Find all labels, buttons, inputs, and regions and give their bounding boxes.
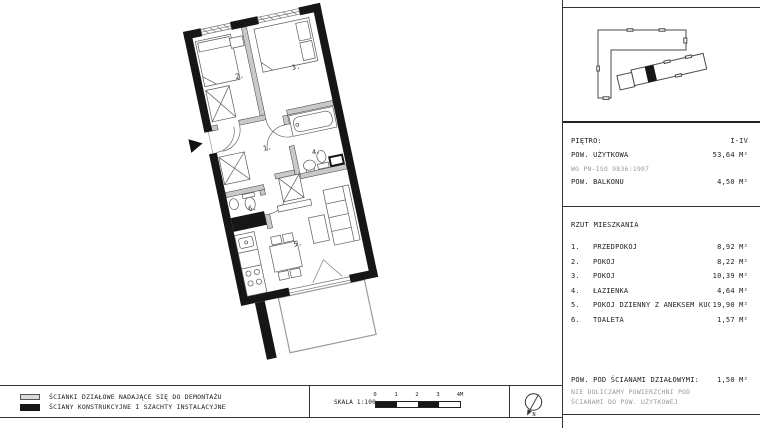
room-name: POKÓJ DZIENNY Z ANEKSEM KUCHENNYM <box>593 301 710 310</box>
legend-partition-label: ŚCIANKI DZIAŁOWE NADAJĄCE SIĘ DO DEMONTA… <box>49 393 222 401</box>
room-area: 19,90 M² <box>710 301 748 310</box>
usable-area-row: POW. UŻYTKOWA 53,64 M² <box>571 151 748 160</box>
legend-row-structural: ŚCIANY KONSTRUKCYJNE I SZACHTY INSTALACY… <box>20 403 309 411</box>
site-plan <box>563 8 760 121</box>
scale-bar <box>375 401 461 408</box>
legend-row-partition: ŚCIANKI DZIAŁOWE NADAJĄCE SIĘ DO DEMONTA… <box>20 393 309 401</box>
partition-area-value: 1,50 M² <box>717 376 748 385</box>
room-name: POKÓJ <box>593 272 710 281</box>
partition-note-line2: ŚCIANAMI DO POW. UŻYTKOWEJ <box>571 398 748 407</box>
room-number: 3. <box>571 272 593 281</box>
scale-tick-4: 4M <box>457 392 464 398</box>
balcony-area-value: 4,50 M² <box>717 178 748 187</box>
scale-section: SKALA 1:100 0 1 2 3 4M <box>310 386 510 417</box>
room-name: POKÓJ <box>593 258 714 267</box>
room-name: ŁAZIENKA <box>593 287 714 296</box>
legend: ŚCIANKI DZIAŁOWE NADAJĄCE SIĘ DO DEMONTA… <box>0 386 310 417</box>
room-area: 10,39 M² <box>710 272 748 281</box>
scale-tick-3: 3 <box>436 392 439 398</box>
room-row-2: 2. POKÓJ 8,22 M² <box>571 258 748 267</box>
title-block-strip: ŚCIANKI DZIAŁOWE NADAJĄCE SIĘ DO DEMONTA… <box>0 385 562 418</box>
room-row-3: 3. POKÓJ 10,39 M² <box>571 272 748 281</box>
compass-section: N <box>510 386 562 417</box>
balcony-area-row: POW. BALKONU 4,50 M² <box>571 178 748 187</box>
scale-tick-0: 0 <box>373 392 376 398</box>
info-panel: PIĘTRO: I-IV POW. UŻYTKOWA 53,64 M² WG P… <box>562 0 760 428</box>
balcony-area-label: POW. BALKONU <box>571 178 624 187</box>
room-list-section: RZUT MIESZKANIA 1. PRZEDPOKÓJ 8,92 M² 2.… <box>563 208 760 415</box>
structural-wall-swatch <box>20 404 40 411</box>
site-building-bar <box>616 52 707 90</box>
room-row-4: 4. ŁAZIENKA 4,64 M² <box>571 287 748 296</box>
room-number: 1. <box>571 243 593 252</box>
room-row-6: 6. TOALETA 1,57 M² <box>571 316 748 325</box>
floor-label: PIĘTRO: <box>571 137 602 146</box>
room-number: 2. <box>571 258 593 267</box>
floor-value: I-IV <box>730 137 748 146</box>
room-name: TOALETA <box>593 316 714 325</box>
installation-shaft <box>329 155 344 167</box>
room-number: 5. <box>571 301 593 310</box>
room-number: 6. <box>571 316 593 325</box>
floor-plan-sheet: 1. 2. 3. 4. 5. 6. ŚCIANKI DZIAŁOWE NADAJ… <box>0 0 760 428</box>
room-number: 4. <box>571 287 593 296</box>
partition-area-block: POW. POD ŚCIANAMI DZIAŁOWYMI: 1,50 M² NI… <box>571 376 748 408</box>
site-plan-section <box>563 7 760 123</box>
partition-wall-swatch <box>20 394 40 400</box>
legend-structural-label: ŚCIANY KONSTRUKCYJNE I SZACHTY INSTALACY… <box>49 403 226 411</box>
area-standard-note: WG PN-ISO 9836:1997 <box>571 165 748 173</box>
room-area: 8,22 M² <box>714 258 748 267</box>
plan-area: 1. 2. 3. 4. 5. 6. <box>0 0 562 385</box>
scale-tick-2: 2 <box>415 392 418 398</box>
room-area: 1,57 M² <box>714 316 748 325</box>
compass-north-label: N <box>532 412 535 417</box>
scale-tick-1: 1 <box>394 392 397 398</box>
room-area: 4,64 M² <box>714 287 748 296</box>
entrance-arrow-icon <box>188 137 204 153</box>
usable-area-value: 53,64 M² <box>713 151 748 160</box>
partition-area-row: POW. POD ŚCIANAMI DZIAŁOWYMI: 1,50 M² <box>571 376 748 385</box>
partition-note-line1: NIE DOLICZAMY POWIERZCHNI POD <box>571 388 748 397</box>
scale-label: SKALA 1:100 <box>334 399 376 406</box>
room-name: PRZEDPOKÓJ <box>593 243 714 252</box>
room-area: 8,92 M² <box>714 243 748 252</box>
apartment-floor-plan: 1. 2. 3. 4. 5. 6. <box>0 0 562 385</box>
room-list-title: RZUT MIESZKANIA <box>571 221 748 229</box>
apartment-info-section: PIĘTRO: I-IV POW. UŻYTKOWA 53,64 M² WG P… <box>563 125 760 207</box>
partition-area-label: POW. POD ŚCIANAMI DZIAŁOWYMI: <box>571 376 699 385</box>
room-row-5: 5. POKÓJ DZIENNY Z ANEKSEM KUCHENNYM 19,… <box>571 301 748 310</box>
hall-wardrobe <box>219 152 250 185</box>
floor-row: PIĘTRO: I-IV <box>571 137 748 146</box>
room-row-1: 1. PRZEDPOKÓJ 8,92 M² <box>571 243 748 252</box>
usable-area-label: POW. UŻYTKOWA <box>571 151 628 160</box>
living-storage-wardrobe <box>279 174 305 202</box>
north-compass-icon: N <box>510 386 562 417</box>
